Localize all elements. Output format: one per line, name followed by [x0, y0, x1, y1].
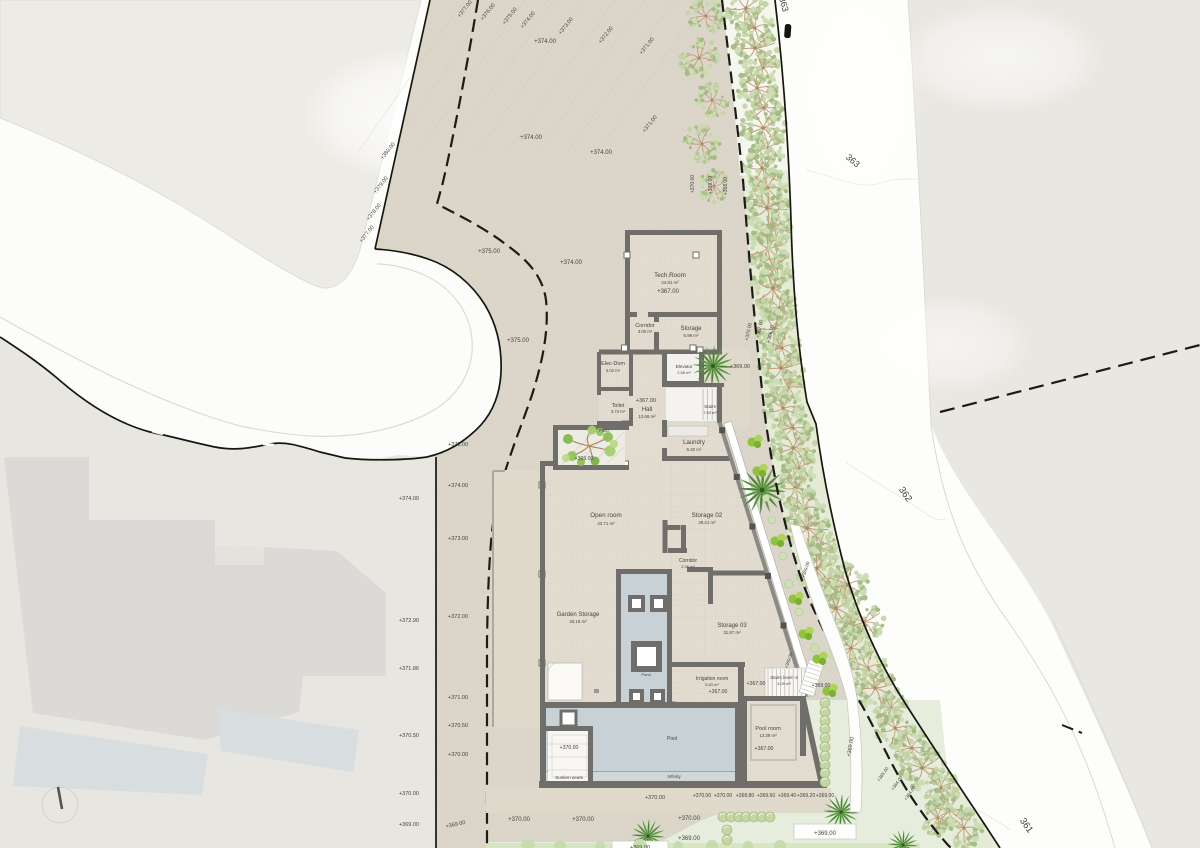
svg-text:+369.00: +369.00 — [812, 683, 831, 689]
svg-text:Infinity: Infinity — [667, 774, 681, 779]
svg-text:6.83 m²: 6.83 m² — [705, 682, 719, 687]
svg-text:+370.00: +370.00 — [560, 745, 579, 751]
svg-text:+369.00: +369.00 — [816, 793, 834, 799]
svg-text:+369.60: +369.60 — [757, 793, 775, 799]
svg-text:33.18 m²: 33.18 m² — [569, 619, 587, 624]
svg-text:+375.00: +375.00 — [507, 338, 530, 344]
svg-text:Patio: Patio — [599, 428, 609, 433]
svg-text:43.71 m²: 43.71 m² — [597, 521, 615, 526]
svg-text:13.68 m²: 13.68 m² — [638, 414, 656, 419]
svg-text:13.39 m²: 13.39 m² — [759, 733, 777, 738]
svg-text:Pond: Pond — [641, 672, 650, 677]
svg-text:Tech.Room: Tech.Room — [654, 272, 686, 279]
svg-text:+369.00: +369.00 — [399, 822, 419, 828]
svg-text:9.40 m²: 9.40 m² — [687, 447, 702, 452]
svg-text:3.74 m²: 3.74 m² — [611, 409, 626, 414]
svg-text:3.00 m²: 3.00 m² — [638, 329, 653, 334]
svg-text:+367.00: +367.00 — [747, 681, 766, 687]
svg-text:Elevator: Elevator — [676, 364, 693, 369]
svg-text:+374.00: +374.00 — [534, 39, 557, 45]
svg-text:Elec-Dom: Elec-Dom — [601, 361, 625, 367]
svg-text:+369.00: +369.00 — [708, 176, 714, 194]
svg-text:+367.00: +367.00 — [709, 689, 728, 695]
svg-text:Hall: Hall — [642, 407, 652, 413]
svg-text:Sunken seats: Sunken seats — [555, 775, 584, 780]
svg-text:+374.00: +374.00 — [520, 135, 543, 141]
svg-text:+369.00: +369.00 — [814, 831, 837, 837]
svg-text:Storage 03: Storage 03 — [717, 623, 747, 629]
svg-text:Storage: Storage — [680, 326, 702, 332]
svg-text:+370.50: +370.50 — [448, 723, 468, 729]
svg-text:6.99 m²: 6.99 m² — [684, 333, 699, 338]
svg-text:+374.00: +374.00 — [399, 496, 419, 502]
svg-text:+370.00: +370.00 — [690, 175, 696, 193]
svg-text:+369.00: +369.00 — [678, 836, 701, 842]
svg-text:+370.00: +370.00 — [714, 793, 732, 799]
svg-text:+367.00: +367.00 — [657, 289, 680, 295]
svg-text:+369.20: +369.20 — [797, 793, 815, 799]
svg-text:+374.00: +374.00 — [560, 260, 583, 266]
svg-text:+370.00: +370.00 — [448, 752, 468, 758]
svg-text:+372.00: +372.00 — [448, 614, 468, 620]
svg-text:+367.00: +367.00 — [636, 398, 656, 404]
svg-text:+370.00: +370.00 — [399, 791, 419, 797]
svg-text:+369.40: +369.40 — [778, 793, 796, 799]
svg-text:+370.00: +370.00 — [572, 817, 595, 823]
svg-text:4.09 m²: 4.09 m² — [777, 681, 791, 686]
svg-text:+370.00: +370.00 — [508, 817, 531, 823]
svg-text:+368.00: +368.00 — [723, 177, 729, 195]
svg-text:24.81 m²: 24.81 m² — [661, 280, 679, 285]
svg-text:Stairs level -2: Stairs level -2 — [770, 675, 798, 680]
svg-text:2.56 m²: 2.56 m² — [677, 370, 691, 375]
svg-text:28.21 m²: 28.21 m² — [698, 520, 716, 525]
svg-text:+372.90: +372.90 — [399, 618, 419, 624]
svg-text:2.96 m²: 2.96 m² — [681, 564, 695, 569]
svg-text:Storage 02: Storage 02 — [692, 512, 723, 519]
svg-text:+370.00: +370.00 — [693, 793, 711, 799]
svg-text:+371.00: +371.00 — [448, 695, 468, 701]
svg-text:+375.00: +375.00 — [478, 249, 501, 255]
svg-text:Pool: Pool — [667, 736, 677, 742]
svg-text:+370.50: +370.50 — [399, 733, 419, 739]
svg-text:+369.00: +369.00 — [730, 364, 750, 370]
svg-text:Stairs: Stairs — [704, 404, 716, 409]
svg-text:+373.00: +373.00 — [448, 536, 468, 542]
svg-text:+369.80: +369.80 — [736, 793, 754, 799]
svg-text:Garden Storage: Garden Storage — [557, 612, 600, 618]
svg-text:4.02 m²: 4.02 m² — [606, 368, 621, 373]
svg-text:+375.00: +375.00 — [448, 442, 468, 448]
svg-text:+370.00: +370.00 — [678, 816, 701, 822]
svg-text:Laundry: Laundry — [683, 440, 705, 446]
svg-text:7.93 m²: 7.93 m² — [703, 410, 717, 415]
svg-text:+374.00: +374.00 — [590, 150, 613, 156]
svg-text:+371.86: +371.86 — [399, 666, 419, 672]
svg-text:+369.00: +369.00 — [575, 456, 594, 462]
svg-text:+370.00: +370.00 — [645, 795, 665, 801]
svg-text:Open room: Open room — [590, 512, 622, 519]
svg-text:+374.00: +374.00 — [448, 483, 468, 489]
svg-text:+367.00: +367.00 — [755, 746, 774, 752]
svg-text:Pool room: Pool room — [755, 726, 781, 732]
svg-text:31.87 m²: 31.87 m² — [723, 630, 741, 635]
